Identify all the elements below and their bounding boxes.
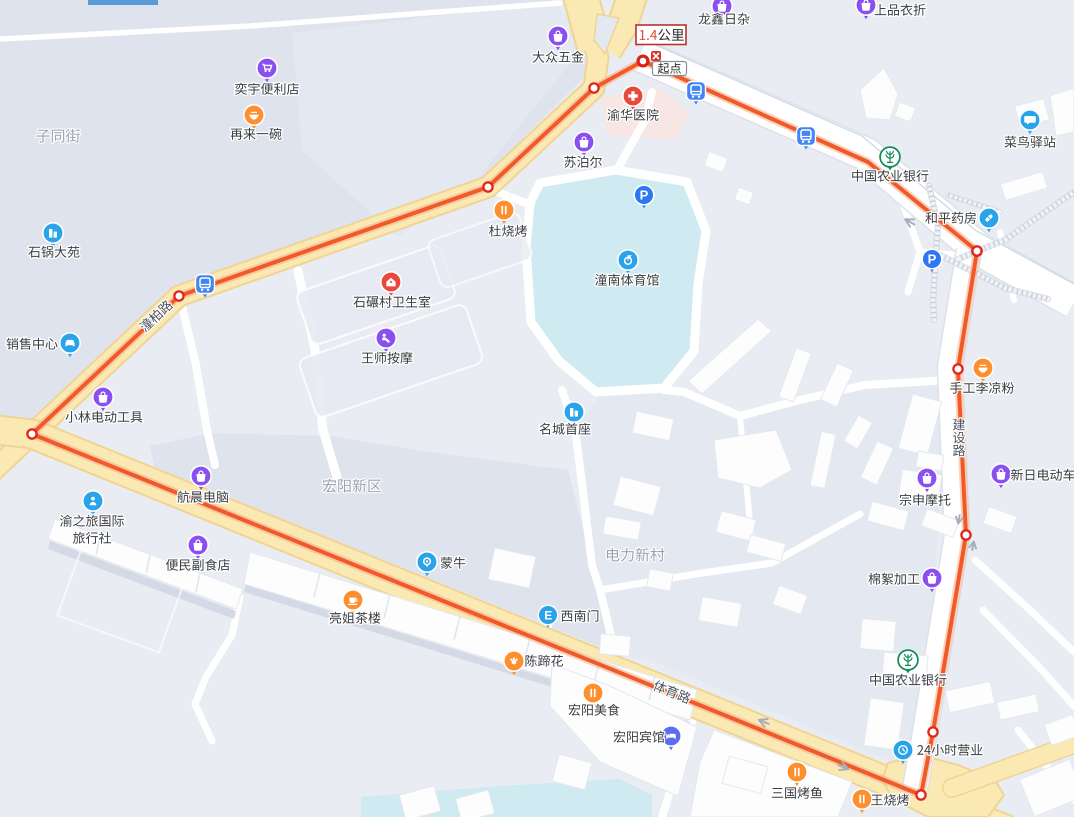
svg-text:P: P xyxy=(640,188,649,203)
svg-text:E: E xyxy=(544,608,552,622)
svg-text:P: P xyxy=(928,252,937,267)
